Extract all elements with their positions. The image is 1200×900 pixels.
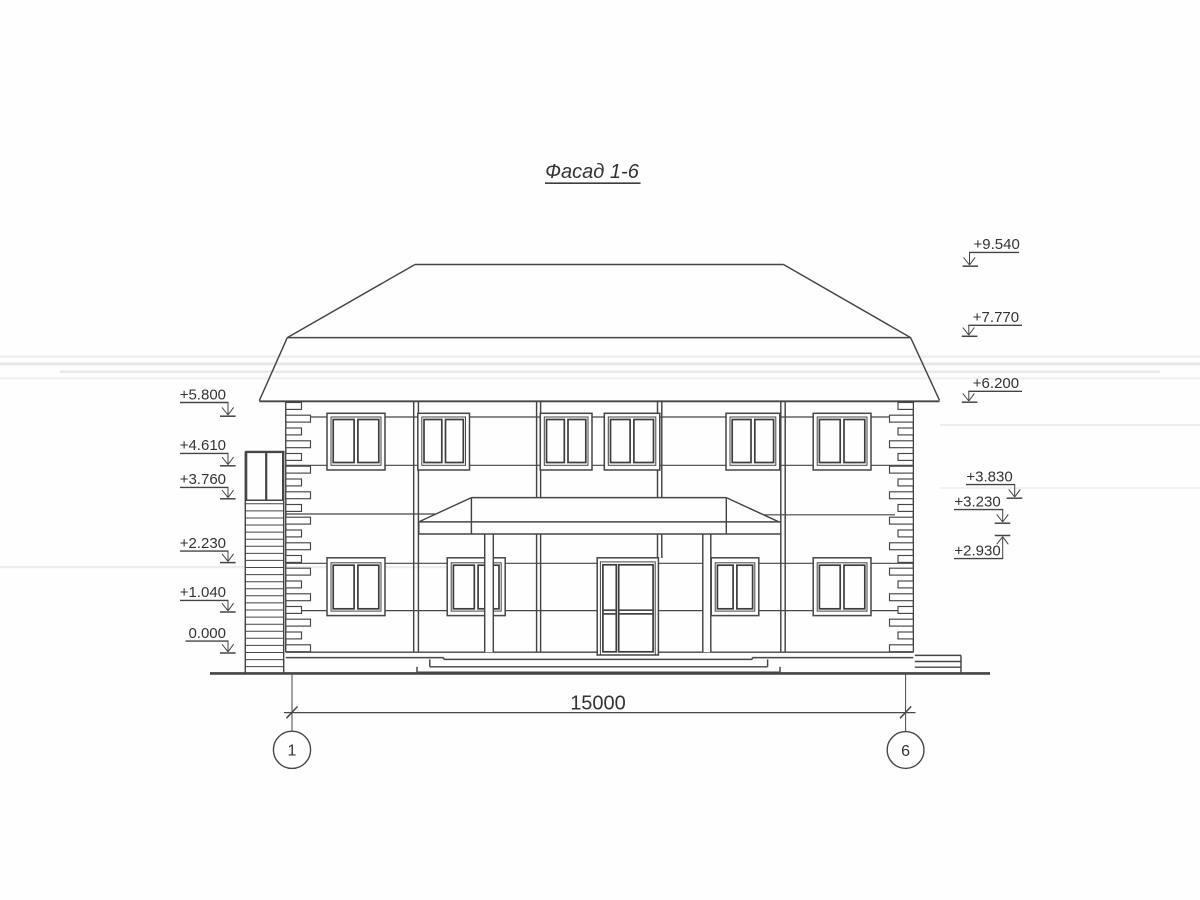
svg-text:+7.770: +7.770 [973,309,1019,326]
svg-text:+3.830: +3.830 [966,468,1012,485]
svg-text:+2.230: +2.230 [180,535,226,552]
svg-text:6: 6 [901,743,910,760]
svg-text:+5.800: +5.800 [180,386,226,403]
svg-text:0.000: 0.000 [188,625,226,642]
svg-text:1: 1 [288,743,297,760]
svg-text:+3.230: +3.230 [954,493,1000,510]
svg-text:+6.200: +6.200 [973,375,1019,392]
svg-text:+9.540: +9.540 [974,236,1020,253]
svg-text:+4.610: +4.610 [180,437,226,454]
svg-text:15000: 15000 [570,693,626,715]
svg-text:Фасад 1-6: Фасад 1-6 [545,161,640,183]
svg-text:+3.760: +3.760 [180,471,226,488]
svg-text:+1.040: +1.040 [180,584,226,601]
svg-text:+2.930: +2.930 [954,542,1000,559]
